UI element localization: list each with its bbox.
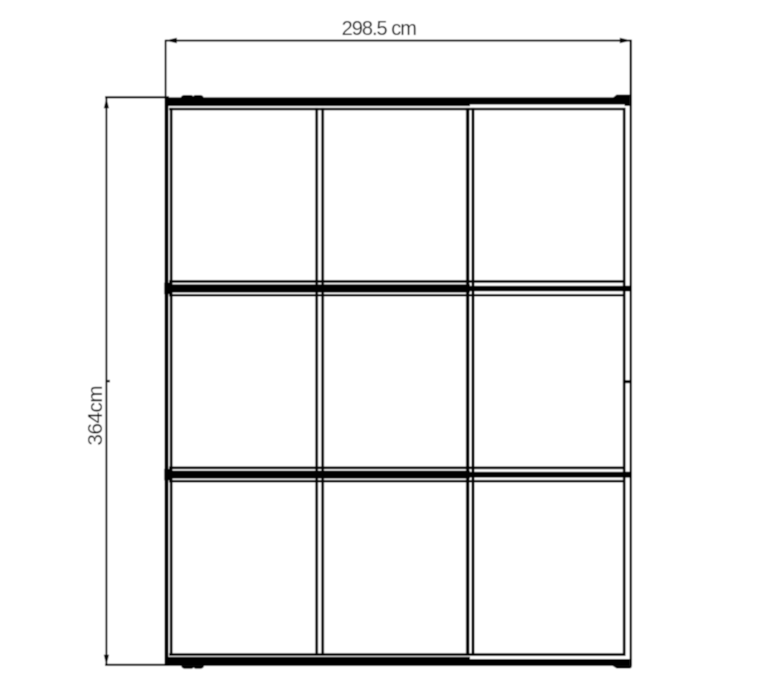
svg-text:298.5 cm: 298.5 cm bbox=[342, 18, 417, 40]
svg-text:364cm: 364cm bbox=[84, 386, 107, 446]
